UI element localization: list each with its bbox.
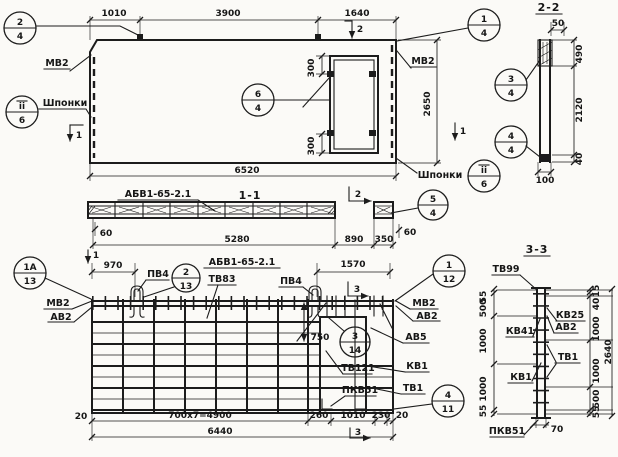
svg-text:5: 5 [430, 195, 436, 205]
panel-plan-view: 1010 3900 1640 6520 2650 300 300 МВ2 МВ2… [36, 9, 468, 211]
dim-3900: 3900 [215, 9, 240, 19]
section-2-2-view: 2-2 50 490 2120 40 100 [526, 1, 585, 186]
callout-leader [397, 28, 468, 41]
label-tv121: ТВ121 [341, 363, 375, 374]
dim-490: 490 [575, 45, 585, 64]
dim-2120: 2120 [575, 97, 585, 122]
callout-4-11: 411 [432, 385, 464, 417]
label-mv2-left: МВ2 [46, 298, 69, 309]
panel-mark: АБВ1-65-2.1 [125, 189, 191, 200]
bottom-embed [539, 154, 549, 162]
dim-100: 100 [536, 176, 555, 186]
label-pkv51: ПКВ51 [489, 426, 525, 437]
label-tv1: ТВ1 [558, 352, 578, 363]
dim-55: 55 [479, 405, 489, 418]
dim-1000: 1000 [479, 376, 489, 401]
embed-anchor-icon [369, 71, 376, 77]
callout-ii-6-left: ii6 [6, 96, 38, 128]
dim-970: 970 [104, 261, 123, 271]
plan-mark: АБВ1-65-2.1 [209, 257, 275, 268]
blueprint-sheet: 1010 3900 1640 6520 2650 300 300 МВ2 МВ2… [0, 0, 618, 457]
dim-300-bottom: 300 [307, 137, 317, 156]
extension-lines [538, 22, 577, 176]
label-kv1: КВ1 [510, 372, 532, 383]
callout-leader [391, 208, 418, 213]
label-tv83: ТВ83 [209, 274, 236, 285]
svg-text:2: 2 [183, 268, 189, 278]
label-shponki-right: Шпонки [418, 170, 463, 181]
drawing-canvas: 1010 3900 1640 6520 2650 300 300 МВ2 МВ2… [0, 0, 618, 457]
dim-40: 40 [575, 153, 585, 166]
cut-mark-3-top: 3 [348, 282, 368, 296]
label-av2: АВ2 [555, 322, 576, 333]
dim-4900: 700x7=4900 [168, 411, 231, 421]
label-pv4-2: ПВ4 [280, 276, 302, 287]
svg-text:4: 4 [481, 29, 487, 39]
dim-lines [92, 421, 393, 437]
embed-leader [303, 77, 330, 107]
end-piece-detail [374, 206, 393, 214]
label-shelf [279, 287, 313, 295]
dim-6520: 6520 [234, 166, 259, 176]
svg-text:3: 3 [355, 428, 361, 438]
svg-text:1А: 1А [23, 263, 36, 273]
svg-text:6: 6 [255, 90, 261, 100]
callout-1a-13: 1А13 [14, 257, 46, 289]
dim-2650: 2650 [423, 91, 433, 116]
dim-20-right: 20 [396, 411, 409, 421]
cut-mark-1-plan: 1 [88, 250, 99, 263]
panel-opening-inner [334, 60, 374, 149]
label-mv2-right: МВ2 [411, 56, 434, 67]
cut-mark-3-bottom: 3 [350, 428, 370, 438]
svg-text:4: 4 [17, 32, 23, 42]
svg-text:1: 1 [446, 261, 452, 271]
callout-1-12: 112 [433, 255, 465, 287]
dim-15: 15 [592, 285, 602, 298]
dim-40: 40 [592, 298, 602, 311]
label-shelf [492, 275, 537, 290]
dim-20-left: 20 [75, 412, 88, 422]
dim-890: 890 [345, 235, 364, 245]
dim-350: 350 [375, 235, 394, 245]
dim-60-left: 60 [100, 229, 113, 239]
svg-text:4: 4 [430, 209, 436, 219]
section-3-3-view: 3-3 55 500 1000 1000 55 15 40 1000 1000 … [479, 243, 615, 437]
dim-50: 50 [552, 19, 565, 29]
svg-text:14: 14 [349, 346, 362, 356]
svg-text:4: 4 [508, 132, 514, 142]
svg-text:13: 13 [180, 282, 193, 292]
section-1-1-title: 1-1 [239, 189, 262, 202]
cut-mark-1-right: 1 [455, 123, 466, 140]
cut-mark-2-bottom: 2 [349, 187, 371, 201]
dim-230: 230 [372, 411, 391, 421]
dim-500: 500 [592, 390, 602, 409]
callout-leader [36, 26, 138, 35]
svg-text:3: 3 [508, 75, 514, 85]
dim-260: 260 [310, 411, 329, 421]
dim-lines [90, 20, 437, 176]
label-kv25: КВ25 [556, 310, 584, 321]
callout-3-14: 314 [340, 327, 370, 357]
dim-1640: 1640 [344, 9, 369, 19]
svg-text:2: 2 [355, 190, 361, 200]
dim-6440: 6440 [207, 427, 232, 437]
label-pkv51: ПКВ51 [342, 385, 378, 396]
callout-1-4: 14 [468, 9, 500, 41]
section-3-3-title: 3-3 [526, 243, 549, 256]
dim-1570: 1570 [340, 260, 365, 270]
label-av5: АВ5 [405, 332, 426, 343]
svg-text:6: 6 [481, 180, 487, 190]
label-shponki-left: Шпонки [43, 98, 88, 109]
svg-text:1: 1 [481, 15, 487, 25]
svg-text:1: 1 [460, 127, 466, 137]
label-mv2-left: МВ2 [45, 58, 68, 69]
reinforcement-plan-view: АБВ1-65-2.1 970 1570 750 20 700x7=4900 2… [44, 250, 440, 441]
label-tv99: ТВ99 [493, 264, 520, 275]
embed-anchor-icon [327, 130, 334, 136]
dim-1000: 1000 [592, 316, 602, 341]
dim-1000: 1000 [479, 328, 489, 353]
dim-55: 55 [592, 406, 602, 419]
label-pv4-1: ПВ4 [147, 269, 169, 280]
callout-5-4: 54 [418, 190, 448, 220]
svg-text:2: 2 [357, 25, 363, 35]
dim-5280: 5280 [224, 235, 249, 245]
svg-text:2: 2 [17, 18, 23, 28]
callout-4-4: 44 [495, 126, 527, 158]
svg-text:4: 4 [255, 104, 261, 114]
svg-text:6: 6 [19, 116, 25, 126]
panel-opening [330, 56, 378, 153]
label-kv41: КВ41 [506, 326, 534, 337]
svg-text:12: 12 [443, 275, 456, 285]
callout-bubbles: 24 ii6 14 64 ii6 54 34 44 1А13 213 112 3… [4, 9, 527, 417]
svg-text:ii: ii [19, 102, 25, 112]
label-kv1: КВ1 [406, 361, 428, 372]
label-av2-left: АВ2 [50, 312, 71, 323]
dim-500: 500 [479, 299, 489, 318]
label-mv2-right: МВ2 [412, 298, 435, 309]
label-av2-right: АВ2 [416, 311, 437, 322]
dim-300-top: 300 [307, 59, 317, 78]
label-tv1: ТВ1 [403, 383, 423, 394]
svg-text:3: 3 [352, 332, 358, 342]
dim-ticks [87, 17, 440, 179]
dim-750: 750 [311, 333, 330, 343]
section-2-2-title: 2-2 [538, 1, 561, 14]
member-edges [540, 40, 550, 162]
dim-60-right: 60 [404, 228, 417, 238]
dim-1000: 1000 [592, 358, 602, 383]
shponki-leader [396, 158, 417, 173]
svg-text:4: 4 [508, 89, 514, 99]
cut-mark-2-top: 2 [345, 21, 363, 38]
svg-text:4: 4 [445, 391, 451, 401]
dim-1010: 1010 [101, 9, 126, 19]
dim-2640: 2640 [604, 339, 614, 364]
dim-lines [538, 30, 574, 172]
callout-leaders [526, 60, 540, 157]
shponki-leader [39, 109, 91, 117]
label-shelf [331, 396, 376, 406]
callout-2-4: 24 [4, 12, 36, 44]
dim-1010: 1010 [340, 411, 365, 421]
panel-outline [90, 40, 396, 163]
callout-ii-6-right: ii6 [468, 160, 500, 192]
svg-text:13: 13 [24, 277, 37, 287]
cut-mark-1-left: 1 [70, 125, 83, 141]
svg-text:1: 1 [93, 251, 99, 261]
svg-text:ii: ii [481, 166, 487, 176]
svg-text:3: 3 [354, 285, 360, 295]
svg-text:1: 1 [76, 131, 82, 141]
dim-ticks [535, 27, 577, 175]
callout-6-4: 64 [242, 84, 274, 116]
callout-3-4: 34 [495, 69, 527, 101]
callout-2-13: 213 [172, 264, 200, 292]
embed-anchor-icon [369, 130, 376, 136]
dim-70: 70 [551, 425, 564, 435]
svg-text:11: 11 [442, 405, 455, 415]
svg-text:4: 4 [508, 146, 514, 156]
